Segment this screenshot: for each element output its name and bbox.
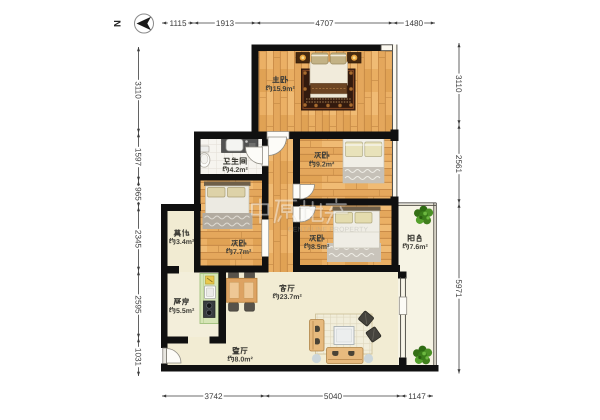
svg-text:3742: 3742 — [204, 392, 223, 401]
svg-text:CENTALINE PROPERTY: CENTALINE PROPERTY — [288, 227, 369, 234]
svg-text:1480: 1480 — [405, 19, 424, 28]
svg-text:5040: 5040 — [324, 392, 343, 401]
svg-text:3110: 3110 — [134, 81, 143, 99]
svg-text:23.7m²: 23.7m² — [280, 294, 303, 301]
svg-text:9.2m²: 9.2m² — [316, 162, 335, 169]
svg-text:2561: 2561 — [454, 155, 463, 174]
svg-text:965: 965 — [134, 187, 143, 201]
svg-text:3110: 3110 — [454, 75, 463, 93]
svg-text:1147: 1147 — [408, 392, 426, 401]
svg-text:8.5m²: 8.5m² — [311, 244, 330, 251]
svg-text:4707: 4707 — [315, 19, 334, 28]
svg-text:1115: 1115 — [170, 19, 187, 28]
svg-text:N: N — [111, 20, 122, 27]
svg-text:8.0m²: 8.0m² — [235, 357, 254, 364]
svg-text:2345: 2345 — [134, 230, 143, 249]
svg-text:1031: 1031 — [134, 348, 143, 367]
svg-text:3.4m²: 3.4m² — [176, 239, 195, 246]
svg-text:5971: 5971 — [454, 279, 463, 298]
svg-text:5.5m²: 5.5m² — [176, 308, 195, 315]
svg-text:7.7m²: 7.7m² — [233, 249, 252, 256]
svg-text:1597: 1597 — [134, 148, 143, 167]
svg-text:1913: 1913 — [216, 19, 235, 28]
svg-text:2595: 2595 — [134, 295, 143, 314]
svg-text:7.6m²: 7.6m² — [410, 244, 429, 251]
svg-text:15.9m²: 15.9m² — [273, 86, 296, 93]
svg-text:4.2m²: 4.2m² — [230, 167, 249, 174]
